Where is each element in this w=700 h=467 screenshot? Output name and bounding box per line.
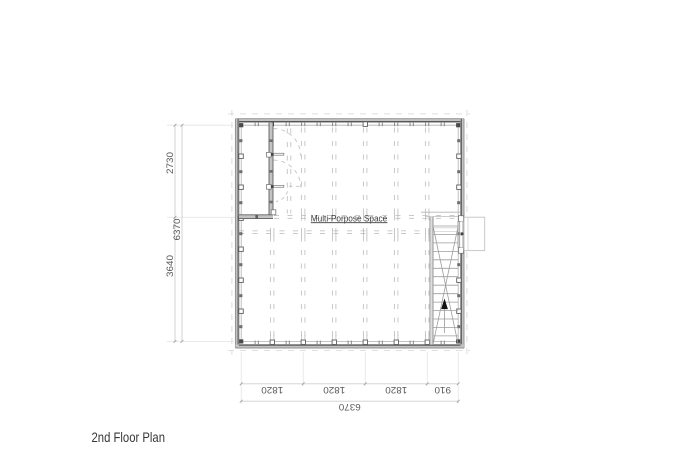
svg-text:Multi-Porpose Space: Multi-Porpose Space xyxy=(311,213,388,224)
svg-text:2nd Floor Plan: 2nd Floor Plan xyxy=(92,430,166,445)
svg-text:1820: 1820 xyxy=(323,385,345,395)
svg-text:910: 910 xyxy=(434,385,451,395)
svg-text:1820: 1820 xyxy=(261,385,283,395)
svg-text:6370: 6370 xyxy=(339,402,361,412)
svg-text:2730: 2730 xyxy=(165,152,175,174)
svg-text:6370: 6370 xyxy=(172,219,182,241)
svg-text:1820: 1820 xyxy=(385,385,407,395)
svg-text:3640: 3640 xyxy=(165,255,175,277)
